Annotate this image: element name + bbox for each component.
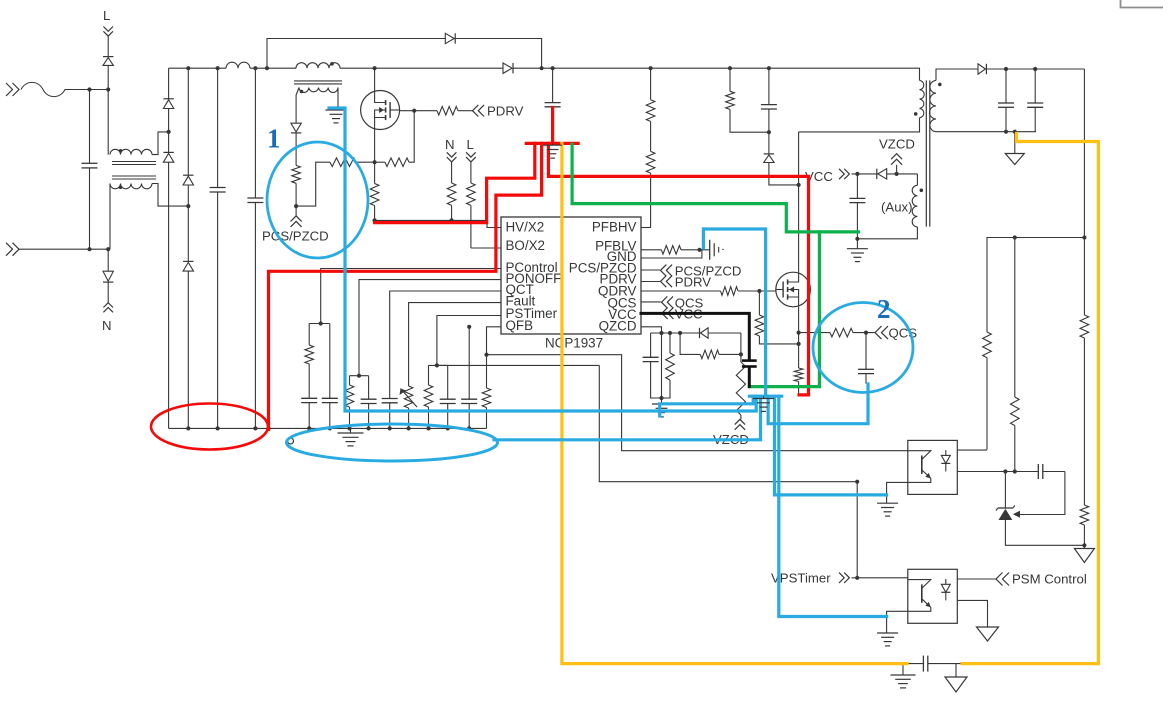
- svg-text:PFBHV: PFBHV: [592, 220, 637, 235]
- svg-text:NCP1937: NCP1937: [545, 336, 603, 351]
- svg-text:2: 2: [877, 294, 891, 324]
- svg-text:QZCD: QZCD: [599, 319, 637, 334]
- svg-text:PCS/PZCD: PCS/PZCD: [262, 229, 329, 244]
- svg-text:PDRV: PDRV: [675, 274, 712, 289]
- svg-text:BO/X2: BO/X2: [506, 238, 545, 253]
- svg-text:(Aux): (Aux): [881, 200, 913, 215]
- svg-text:1: 1: [267, 124, 281, 154]
- svg-text:L: L: [467, 137, 474, 152]
- svg-text:HV/X2: HV/X2: [506, 220, 545, 235]
- svg-text:PSM Control: PSM Control: [1012, 572, 1087, 587]
- svg-text:L: L: [103, 8, 110, 23]
- svg-text:PDRV: PDRV: [487, 104, 524, 119]
- svg-text:QFB: QFB: [506, 318, 534, 333]
- svg-text:N: N: [102, 318, 112, 333]
- svg-text:N: N: [445, 137, 455, 152]
- svg-text:VZCD: VZCD: [879, 137, 915, 152]
